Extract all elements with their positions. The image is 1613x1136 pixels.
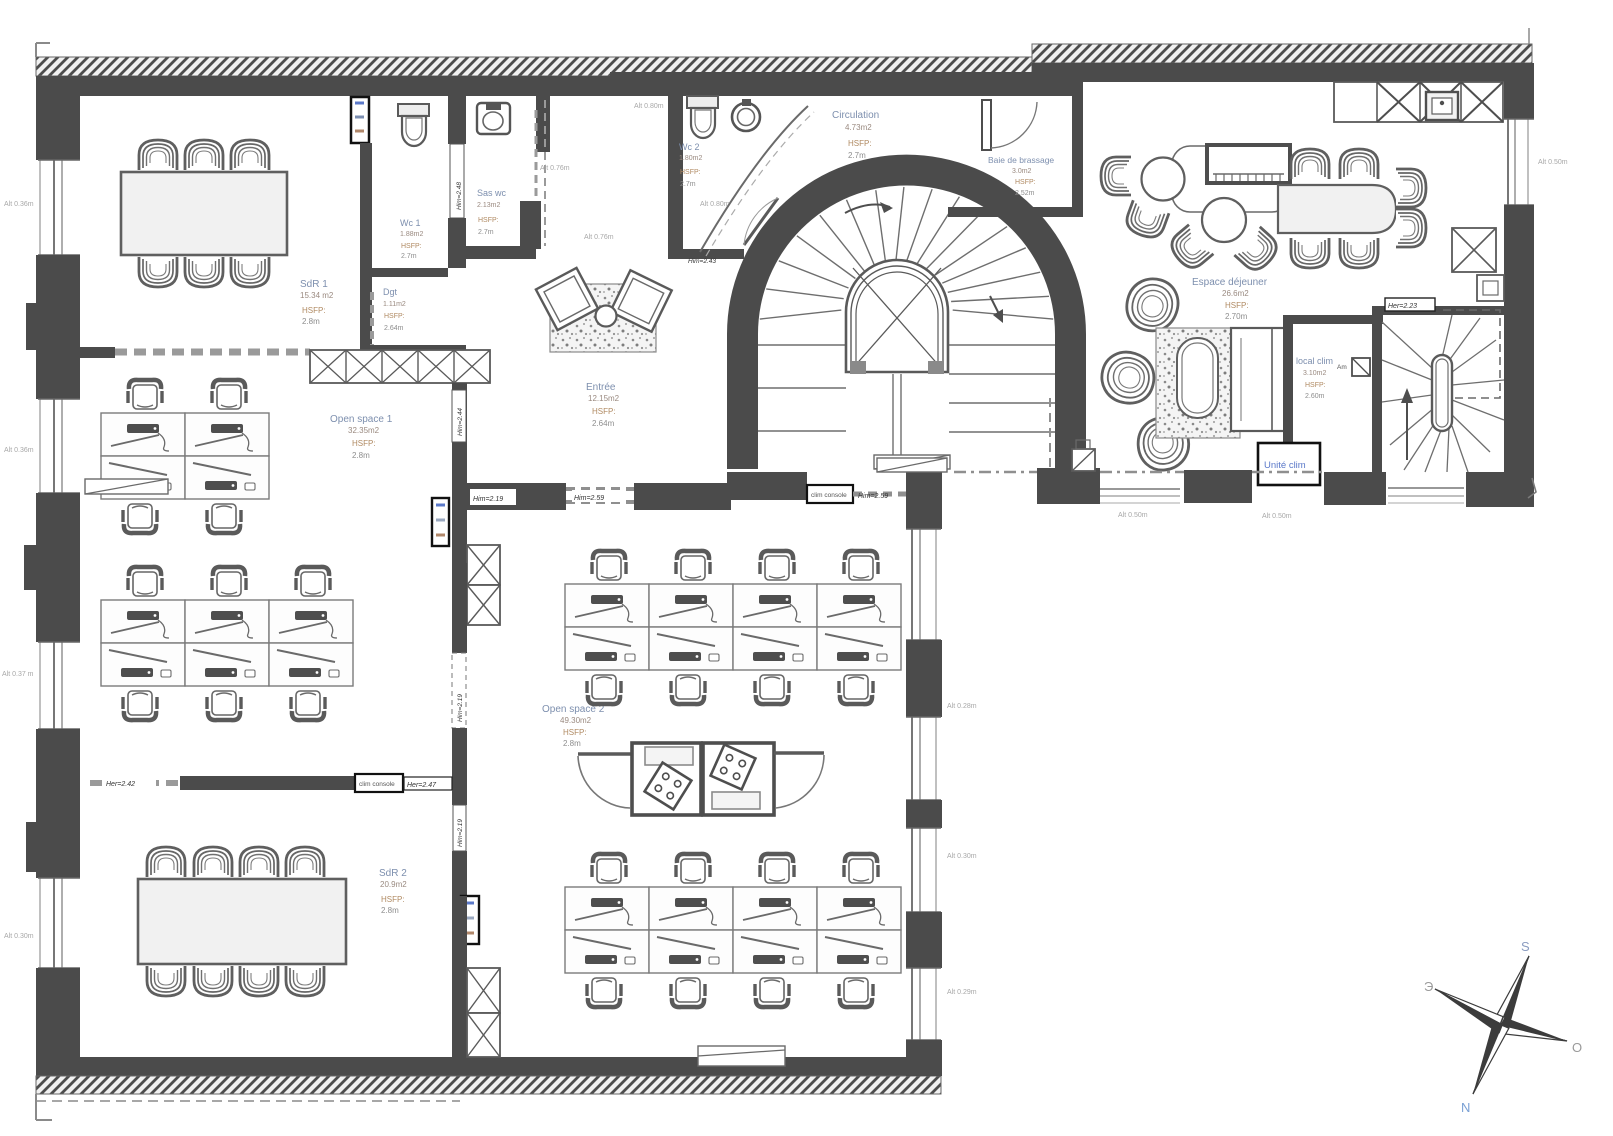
svg-text:2.8m: 2.8m bbox=[352, 451, 370, 460]
svg-text:Sas wc: Sas wc bbox=[477, 188, 507, 198]
svg-text:2.60m: 2.60m bbox=[1305, 393, 1325, 400]
svg-text:Her=2.42: Her=2.42 bbox=[106, 781, 135, 788]
svg-text:HSFP:: HSFP: bbox=[302, 306, 326, 315]
svg-text:HSFP:: HSFP: bbox=[592, 407, 616, 416]
svg-text:Baie de brassage: Baie de brassage bbox=[988, 155, 1054, 165]
svg-text:Dgt: Dgt bbox=[383, 287, 398, 297]
svg-text:1.88m2: 1.88m2 bbox=[400, 231, 423, 238]
svg-text:Alt 0.50m: Alt 0.50m bbox=[1262, 513, 1292, 520]
svg-text:2.8m: 2.8m bbox=[563, 739, 581, 748]
svg-text:3.10m2: 3.10m2 bbox=[1303, 370, 1326, 377]
svg-text:Her=2.47: Her=2.47 bbox=[407, 782, 437, 789]
svg-text:Alt 0.80m: Alt 0.80m bbox=[634, 103, 664, 110]
svg-text:4.73m2: 4.73m2 bbox=[845, 123, 872, 132]
svg-text:1.80m2: 1.80m2 bbox=[679, 155, 702, 162]
svg-text:HSFP:: HSFP: bbox=[1015, 179, 1036, 186]
svg-text:2.8m: 2.8m bbox=[381, 906, 399, 915]
svg-text:HSFP:: HSFP: bbox=[478, 217, 499, 224]
svg-text:Him=2.44: Him=2.44 bbox=[457, 408, 464, 436]
svg-text:clim console: clim console bbox=[359, 781, 395, 788]
svg-text:32.35m2: 32.35m2 bbox=[348, 426, 380, 435]
svg-text:clim console: clim console bbox=[811, 492, 847, 499]
svg-text:Э: Э bbox=[1424, 979, 1433, 994]
svg-text:Him=2.48: Him=2.48 bbox=[456, 182, 463, 210]
svg-text:2.70m: 2.70m bbox=[1225, 312, 1248, 321]
svg-text:Him=2.59: Him=2.59 bbox=[574, 495, 604, 502]
svg-text:15.34 m2: 15.34 m2 bbox=[300, 291, 334, 300]
svg-text:Alt 0.37 m: Alt 0.37 m bbox=[2, 671, 34, 678]
svg-text:26.6m2: 26.6m2 bbox=[1222, 289, 1249, 298]
svg-text:Alt 0.36m: Alt 0.36m bbox=[4, 201, 34, 208]
svg-text:2.7m: 2.7m bbox=[401, 253, 417, 260]
svg-text:49.30m2: 49.30m2 bbox=[560, 716, 592, 725]
svg-text:2.8m: 2.8m bbox=[302, 317, 320, 326]
svg-text:Alt 0.28m: Alt 0.28m bbox=[947, 703, 977, 710]
svg-text:2.7m: 2.7m bbox=[680, 181, 696, 188]
svg-text:SdR 2: SdR 2 bbox=[379, 868, 407, 879]
svg-text:Him=2.19: Him=2.19 bbox=[457, 819, 464, 847]
svg-text:HSFP:: HSFP: bbox=[352, 439, 376, 448]
svg-text:2.64m: 2.64m bbox=[384, 325, 404, 332]
svg-text:2.7m: 2.7m bbox=[478, 229, 494, 236]
svg-text:Alt 0.76m: Alt 0.76m bbox=[540, 165, 570, 172]
svg-text:HSFP:: HSFP: bbox=[1305, 382, 1326, 389]
svg-text:2.64m: 2.64m bbox=[592, 419, 615, 428]
svg-text:1.11m2: 1.11m2 bbox=[383, 301, 406, 308]
svg-text:Alt 0.30m: Alt 0.30m bbox=[947, 853, 977, 860]
svg-text:Him=2.59: Him=2.59 bbox=[858, 493, 888, 500]
svg-text:Alt 0.76m: Alt 0.76m bbox=[584, 234, 614, 241]
svg-text:Him=2.43: Him=2.43 bbox=[688, 258, 716, 265]
svg-text:local clim: local clim bbox=[1296, 356, 1333, 366]
svg-text:Wc 1: Wc 1 bbox=[400, 218, 421, 228]
svg-text:Alt 0.29m: Alt 0.29m bbox=[947, 989, 977, 996]
svg-text:HSFP:: HSFP: bbox=[1225, 301, 1249, 310]
svg-text:Him=2.19: Him=2.19 bbox=[473, 496, 503, 503]
svg-text:Entrée: Entrée bbox=[586, 382, 616, 393]
svg-text:20.9m2: 20.9m2 bbox=[380, 880, 407, 889]
svg-text:3.0m2: 3.0m2 bbox=[1012, 168, 1032, 175]
svg-text:2.13m2: 2.13m2 bbox=[477, 202, 500, 209]
svg-text:Her=2.23: Her=2.23 bbox=[1388, 303, 1417, 310]
svg-text:Open space 1: Open space 1 bbox=[330, 414, 393, 425]
svg-text:N: N bbox=[1461, 1100, 1470, 1115]
svg-text:HSFP:: HSFP: bbox=[563, 728, 587, 737]
svg-text:Wc 2: Wc 2 bbox=[679, 142, 700, 152]
svg-text:Alt 0.30m: Alt 0.30m bbox=[4, 933, 34, 940]
svg-text:S: S bbox=[1521, 939, 1530, 954]
svg-text:Him=2.19: Him=2.19 bbox=[457, 694, 464, 722]
svg-text:HSFP:: HSFP: bbox=[381, 895, 405, 904]
svg-text:Alt 0.36m: Alt 0.36m bbox=[4, 447, 34, 454]
svg-text:HSFP:: HSFP: bbox=[401, 243, 422, 250]
svg-text:Alt 0.50m: Alt 0.50m bbox=[1538, 159, 1568, 166]
svg-text:Alt 0.80m: Alt 0.80m bbox=[700, 201, 730, 208]
svg-text:2.7m: 2.7m bbox=[848, 151, 866, 160]
svg-text:Alt 0.50m: Alt 0.50m bbox=[1118, 512, 1148, 519]
svg-text:Am: Am bbox=[1337, 364, 1347, 371]
svg-text:Unité clim: Unité clim bbox=[1264, 460, 1306, 471]
svg-text:2.52m: 2.52m bbox=[1015, 190, 1035, 197]
svg-text:HSFP:: HSFP: bbox=[384, 313, 405, 320]
svg-text:SdR 1: SdR 1 bbox=[300, 279, 328, 290]
svg-text:O: O bbox=[1572, 1040, 1582, 1055]
svg-text:HSFP:: HSFP: bbox=[680, 169, 701, 176]
svg-text:Circulation: Circulation bbox=[832, 110, 879, 121]
svg-text:HSFP:: HSFP: bbox=[848, 139, 872, 148]
svg-text:12.15m2: 12.15m2 bbox=[588, 394, 620, 403]
svg-text:Espace déjeuner: Espace déjeuner bbox=[1192, 277, 1268, 288]
